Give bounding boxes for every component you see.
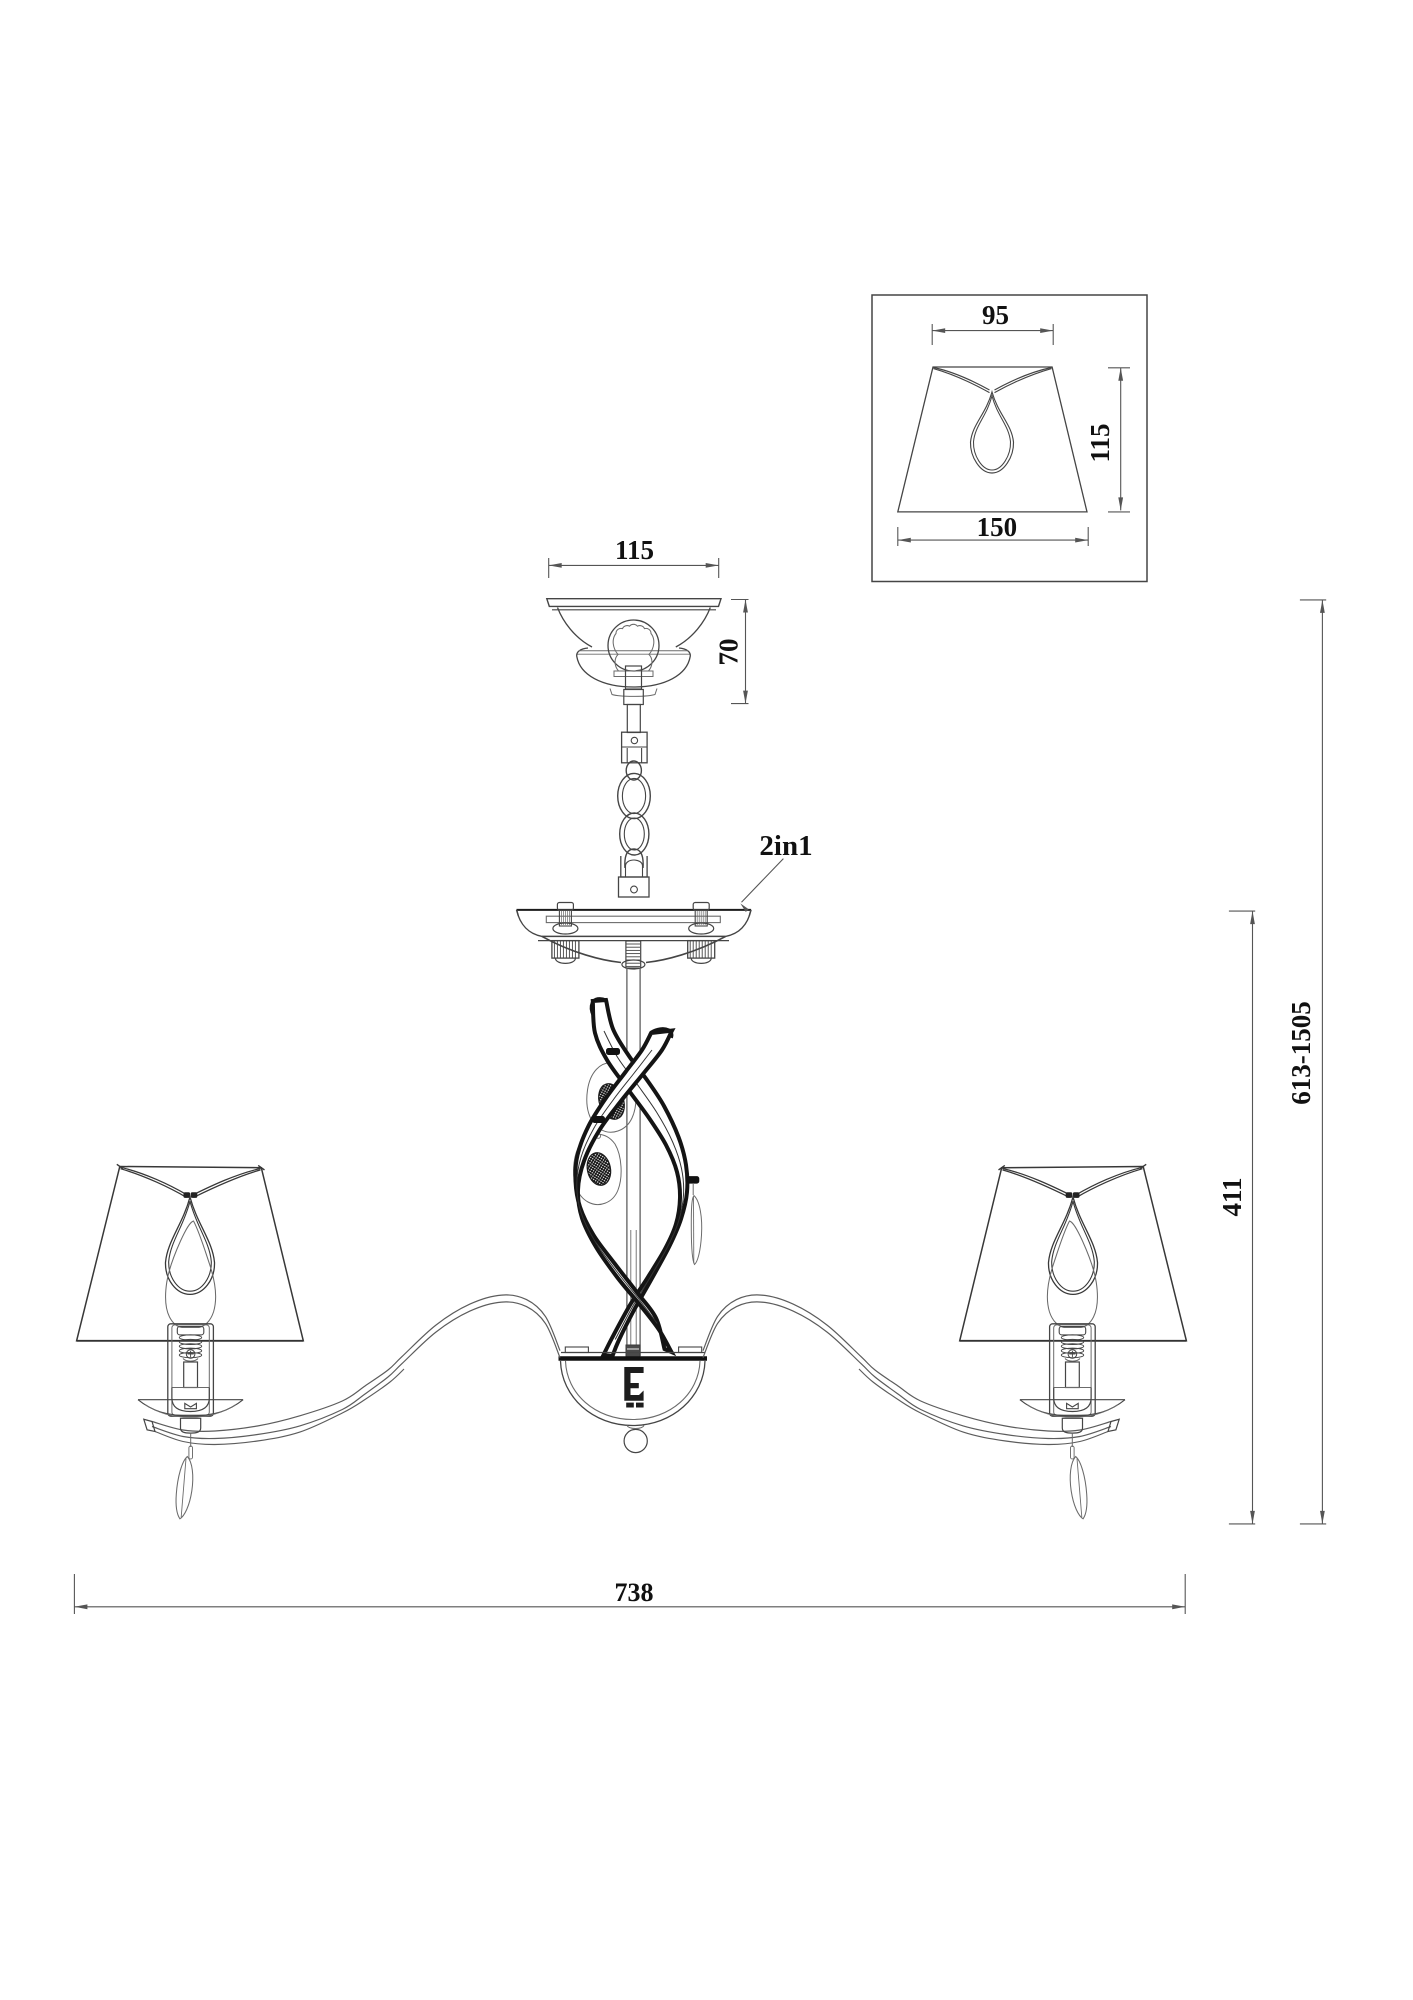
svg-text:115: 115 xyxy=(1085,423,1115,462)
svg-text:411: 411 xyxy=(1217,1177,1247,1216)
svg-text:150: 150 xyxy=(977,512,1018,542)
svg-text:613-1505: 613-1505 xyxy=(1286,1001,1316,1105)
svg-text:115: 115 xyxy=(615,535,654,565)
svg-text:2in1: 2in1 xyxy=(759,830,812,862)
svg-text:738: 738 xyxy=(615,1578,654,1607)
svg-text:70: 70 xyxy=(714,639,744,666)
svg-text:95: 95 xyxy=(982,300,1009,330)
